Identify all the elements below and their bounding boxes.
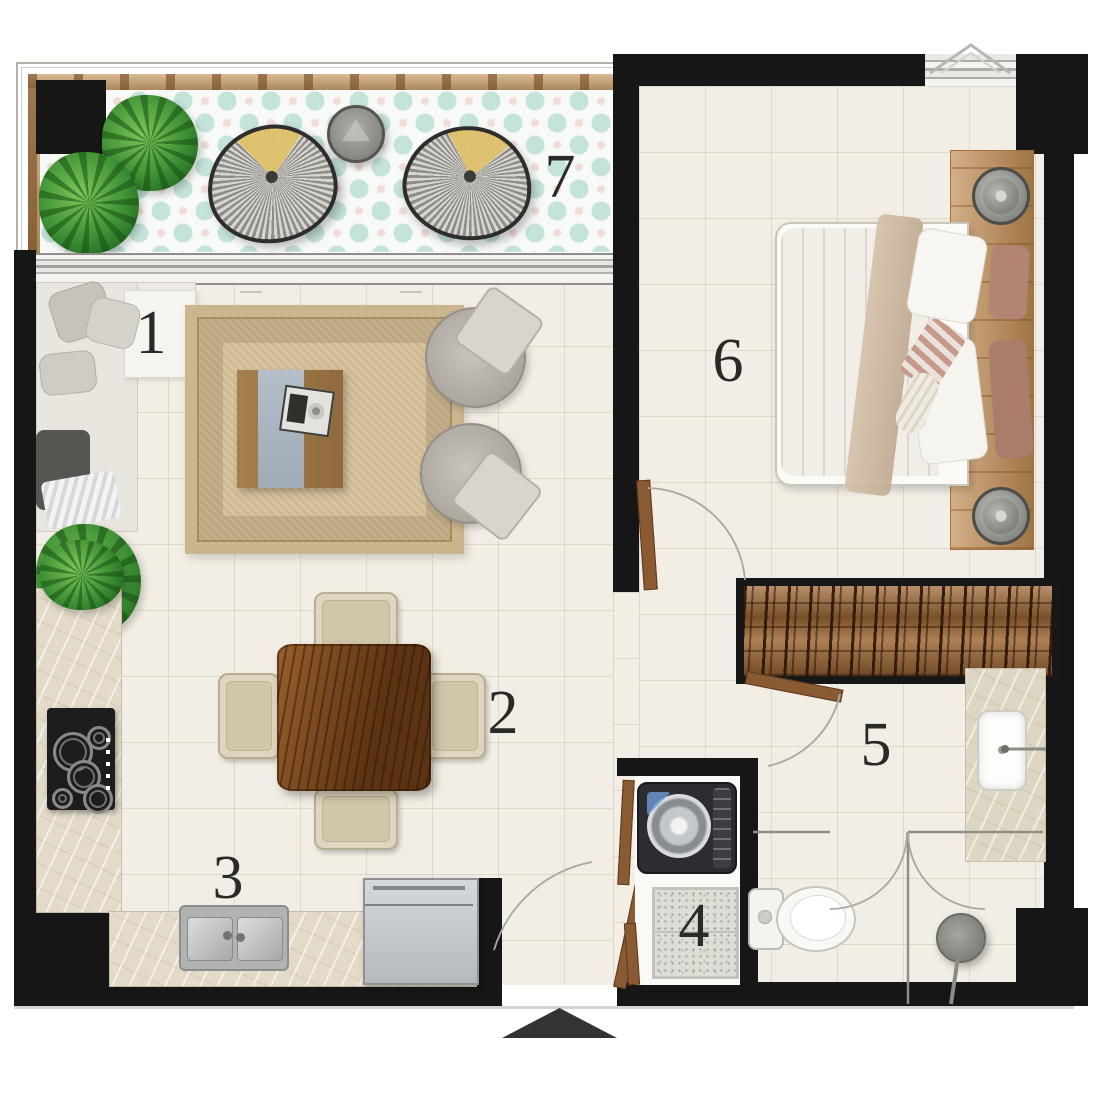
floor-plan: 1 2 3 4 5 6 7: [0, 0, 1100, 1100]
faucet-dot: [1001, 745, 1009, 753]
bedroom-door-arc: [648, 488, 745, 580]
bathroom-door-arc: [768, 694, 840, 766]
window-chevron: [930, 45, 1010, 73]
shower-door-arc: [830, 832, 907, 909]
room-label-balcony: 7: [545, 146, 576, 208]
shower-glass-partition: [753, 832, 1043, 1004]
shower-hose: [951, 957, 958, 1004]
room-label-bathroom: 5: [861, 714, 892, 776]
room-label-living: 1: [136, 302, 167, 364]
room-label-laundry: 4: [679, 895, 710, 957]
room-label-dining: 2: [488, 682, 519, 744]
room-label-kitchen: 3: [213, 847, 244, 909]
entry-door-arc: [494, 862, 592, 950]
shower-door-arc: [908, 832, 985, 909]
window-chevron-inner: [941, 53, 1000, 73]
room-label-bedroom: 6: [713, 330, 744, 392]
